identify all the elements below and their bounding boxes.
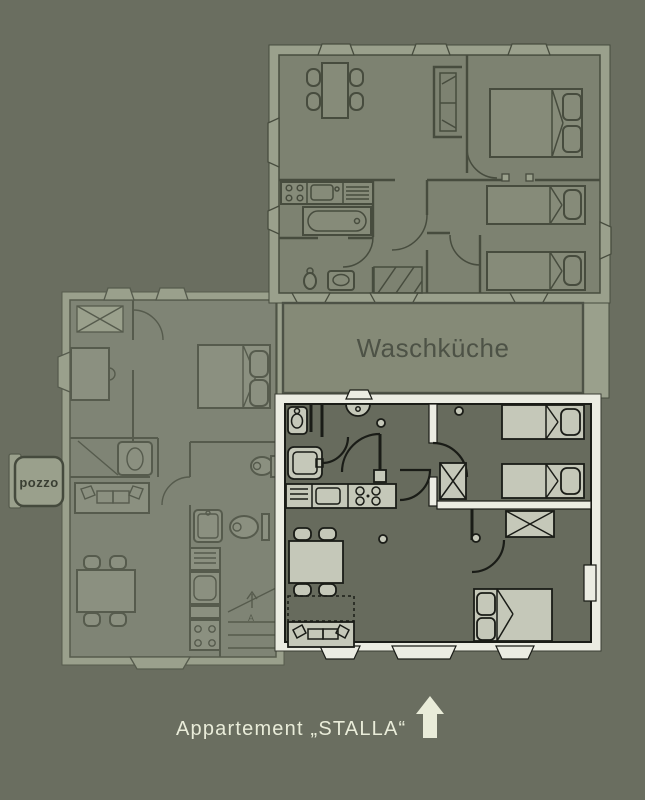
stalla-kitchen-counter (286, 484, 396, 508)
pozzo-well: pozzo (9, 454, 63, 508)
stairs-label: A (248, 613, 254, 623)
left-toilet (230, 514, 269, 540)
left-sofa (75, 483, 149, 513)
top-apartment (268, 44, 611, 304)
caption-label: Appartement „STALLA“ (176, 718, 406, 740)
left-wardrobe (77, 306, 123, 332)
top-single-bed-1 (487, 186, 585, 224)
stalla-double-bed (474, 589, 552, 641)
left-toilet-2 (251, 456, 277, 477)
laundry-room-label: Waschküche (357, 333, 510, 363)
top-single-bed-2 (487, 252, 585, 290)
stalla-wardrobe-1 (440, 463, 466, 499)
pozzo-label: pozzo (19, 475, 58, 490)
left-apartment: A (58, 288, 284, 669)
laundry-room: Waschküche (283, 303, 583, 393)
left-desk (71, 348, 115, 400)
left-kitchen-units (190, 548, 220, 650)
stalla-apartment (275, 390, 601, 659)
top-double-bed (490, 89, 582, 157)
top-kitchen-counter (281, 182, 373, 204)
top-bathtub (303, 207, 371, 235)
floor-plan: A (0, 0, 645, 800)
left-washbasin (194, 510, 222, 542)
top-washbasin (328, 271, 354, 290)
stalla-single-bed-1 (502, 405, 584, 439)
stalla-wardrobe-2 (506, 511, 554, 537)
left-double-bed (198, 345, 270, 408)
stalla-shower (288, 447, 323, 479)
stalla-single-bed-2 (502, 464, 584, 498)
stalla-toilet (288, 407, 307, 434)
